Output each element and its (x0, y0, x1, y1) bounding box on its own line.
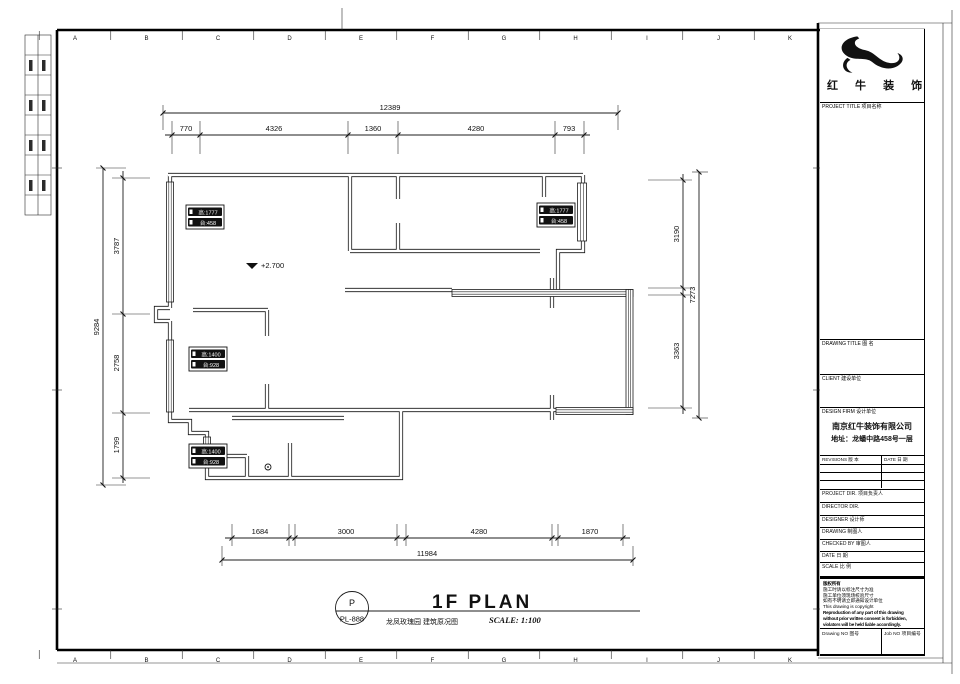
sheet-frame (52, 8, 952, 674)
scale-text: SCALE: 1:100 (489, 615, 541, 625)
company-logo (820, 29, 924, 76)
project-title-label: PROJECT TITLE 项目名称 (820, 103, 924, 112)
title-block-logo-section: 红 牛 装 饰 (820, 29, 924, 103)
grid-letter: E (359, 36, 363, 42)
grid-letter: H (573, 36, 577, 42)
grid-letter: D (287, 658, 292, 664)
checked-by-row: CHECKED BY 审图人 (820, 540, 924, 552)
dims-top: 12389 770 4326 1360 4280 793 (161, 103, 621, 154)
director-row: DIRECTOR DIR. (820, 503, 924, 516)
svg-text:高:1400: 高:1400 (201, 447, 220, 455)
svg-text:4280: 4280 (471, 527, 488, 536)
window-tag-left-mid: 高:1400 台:928 (189, 347, 227, 371)
svg-text:3787: 3787 (112, 238, 121, 255)
drawing-title-label: DRAWING TITLE 图 名 (820, 340, 924, 349)
plan-title: 1F PLAN (432, 592, 532, 613)
dim-right-total: 7273 (688, 287, 697, 304)
svg-text:3000: 3000 (338, 527, 355, 536)
window-tag-left-upper: 高:1777 台:458 (186, 205, 224, 229)
grid-letter: K (788, 36, 792, 42)
project-title-section: PROJECT TITLE 项目名称 (820, 103, 924, 340)
project-dir-row: PROJECT DIR. 项目负责人 (820, 490, 924, 503)
revisions-section: REVISIONS 版 本 DATE 日 期 (820, 456, 924, 490)
dims-bottom: 1684 3000 4280 1870 11984 (220, 524, 636, 566)
revision-row (820, 472, 924, 480)
drawing-title-section: DRAWING TITLE 图 名 (820, 340, 924, 375)
svg-text:2758: 2758 (112, 355, 121, 372)
revisions-label: REVISIONS 版 本 (820, 456, 882, 464)
svg-text:3363: 3363 (672, 343, 681, 360)
design-firm-label: DESIGN FIRM 设计单位 (820, 408, 924, 417)
date-row: DATE 日 期 (820, 552, 924, 563)
grid-letter: C (216, 658, 221, 664)
bull-logo-icon (828, 32, 916, 76)
grid-letter: G (502, 36, 507, 42)
company-name: 红 牛 装 饰 (820, 77, 924, 93)
notes-section: 版权所有 施工时请以标注尺寸为准 施工单位须现场校验尺寸 如有不明请立即通知设计… (820, 577, 924, 629)
revision-row (820, 480, 924, 488)
svg-text:1870: 1870 (582, 527, 599, 536)
drawing-no-label: Drawing NO 图号 (820, 629, 882, 654)
title-block: 红 牛 装 饰 PROJECT TITLE 项目名称 DRAWING TITLE… (820, 29, 925, 656)
dims-right: 3190 3363 7273 (648, 170, 708, 421)
grid-letter: F (431, 36, 435, 42)
grid-letters-top: ABCDEFGHIJK (39, 31, 792, 42)
dim-top-total: 12389 (380, 103, 401, 112)
scale-row: SCALE 比 例 (820, 563, 924, 577)
svg-text:高:1777: 高:1777 (198, 208, 217, 216)
svg-text:台:928: 台:928 (203, 361, 219, 369)
level-marker: +2.700 (246, 261, 284, 270)
client-section: CLIENT 建设单位 (820, 375, 924, 408)
svg-text:台:458: 台:458 (200, 219, 216, 227)
dim-bottom-total: 11984 (417, 549, 437, 558)
grid-letter: B (144, 658, 148, 664)
svg-text:台:458: 台:458 (551, 217, 567, 225)
grid-letter: B (144, 36, 148, 42)
margin-mini-table (25, 35, 51, 215)
revision-row (820, 464, 924, 472)
level-value: +2.700 (261, 261, 284, 270)
drawing-sheet: ABCDEFGHIJK ABCDEFGHIJK (0, 0, 960, 684)
plan-title-group: P PL-888 1F PLAN 龙凤玫瑰园 建筑原况图 SCALE: 1:10… (336, 592, 641, 627)
client-label: CLIENT 建设单位 (820, 375, 924, 384)
svg-text:1799: 1799 (112, 437, 121, 454)
floor-drain-icon (265, 464, 271, 470)
svg-text:高:1777: 高:1777 (549, 206, 568, 214)
design-firm-section: DESIGN FIRM 设计单位 南京红牛装饰有限公司 地址：龙蟠中路458号一… (820, 408, 924, 456)
svg-text:770: 770 (180, 124, 193, 133)
drawing-number-section: Drawing NO 图号 Job NO 项目编号 (820, 629, 924, 656)
stamp-letter: P (349, 598, 355, 608)
design-firm-address: 地址：龙蟠中路458号一层 (820, 434, 924, 444)
grid-letter: J (717, 658, 720, 664)
window-tag-left-lower: 高:1400 台:928 (189, 444, 227, 468)
grid-letter: H (573, 658, 577, 664)
design-firm-name: 南京红牛装饰有限公司 (820, 421, 924, 432)
revisions-date-label: DATE 日 期 (882, 456, 924, 464)
note-line: violators will be held liable accordingl… (823, 622, 921, 628)
designer-row: DESIGNER 设计师 (820, 516, 924, 528)
grid-letters-bottom: ABCDEFGHIJK (39, 650, 792, 664)
job-no-label: Job NO 项目编号 (882, 629, 924, 654)
grid-letter: E (359, 658, 363, 664)
grid-letter: F (431, 658, 435, 664)
grid-letter: I (646, 36, 648, 42)
svg-text:高:1400: 高:1400 (201, 350, 220, 358)
grid-letter: G (502, 658, 507, 664)
dims-left: 9284 3787 2758 1799 (92, 166, 150, 488)
window-tag-top-right: 高:1777 台:458 (537, 203, 575, 227)
svg-text:4280: 4280 (468, 124, 485, 133)
svg-text:1360: 1360 (365, 124, 382, 133)
floor-plan-canvas: ABCDEFGHIJK ABCDEFGHIJK (0, 0, 960, 684)
stamp-number: PL-888 (340, 615, 364, 624)
dim-left-total: 9284 (92, 319, 101, 336)
svg-text:1684: 1684 (252, 527, 269, 536)
grid-letter: A (73, 658, 77, 664)
svg-text:台:928: 台:928 (203, 458, 219, 466)
drawing-row: DRAWING 制图人 (820, 528, 924, 540)
grid-letter: D (287, 36, 292, 42)
grid-letter: C (216, 36, 221, 42)
svg-text:793: 793 (563, 124, 576, 133)
note-line: without prior written consent is forbidd… (823, 616, 921, 622)
grid-letter: K (788, 658, 792, 664)
svg-text:4326: 4326 (266, 124, 283, 133)
plan-subtitle: 龙凤玫瑰园 建筑原况图 (386, 617, 458, 626)
grid-letter: A (73, 36, 77, 42)
grid-letter: J (717, 36, 720, 42)
svg-text:3190: 3190 (672, 226, 681, 243)
